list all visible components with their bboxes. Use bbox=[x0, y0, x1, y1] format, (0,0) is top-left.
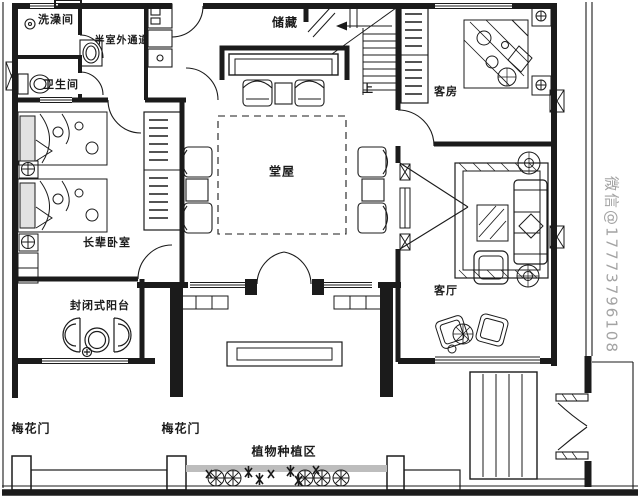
watermark-text: 微信@17773796108 bbox=[602, 176, 623, 354]
floor-plan-drawing bbox=[0, 0, 640, 500]
gate-label-middle: 梅花门 bbox=[161, 420, 200, 437]
balcony-furniture bbox=[63, 318, 131, 357]
room-label-living-room: 客厅 bbox=[434, 282, 458, 298]
room-label-hall: 堂屋 bbox=[269, 163, 295, 180]
entrance-step bbox=[227, 342, 342, 366]
elders-bedroom-furniture bbox=[18, 112, 181, 283]
media-wall bbox=[400, 164, 410, 250]
room-label-balcony: 封闭式阳台 bbox=[70, 297, 130, 313]
room-label-elders-bedroom: 长辈卧室 bbox=[83, 234, 131, 250]
stairs-up-label: 上 bbox=[362, 80, 374, 96]
room-label-guest-room: 客房 bbox=[434, 83, 458, 99]
room-label-shower: 洗澡间 bbox=[38, 11, 74, 27]
room-label-planting-area: 植物种植区 bbox=[251, 443, 316, 460]
room-label-passage: 半室外通道 bbox=[95, 32, 150, 47]
living-room-furniture bbox=[434, 152, 548, 353]
hall-furniture bbox=[183, 54, 388, 234]
outer-boundary-wall bbox=[2, 486, 638, 493]
gate-label-left: 梅花门 bbox=[11, 420, 50, 437]
pillars-and-jambs bbox=[170, 279, 393, 397]
porch-double-door bbox=[556, 394, 588, 459]
room-label-toilet: 卫生间 bbox=[43, 76, 79, 92]
floor-plan: 洗澡间 半室外通道 卫生间 储藏 客房 堂屋 长辈卧室 封闭式阳台 客厅 植物种… bbox=[0, 0, 640, 500]
guest-room-furniture bbox=[401, 7, 551, 103]
planting-bed bbox=[186, 465, 387, 486]
room-label-storage: 储藏 bbox=[272, 14, 298, 31]
passage-counters bbox=[148, 4, 172, 67]
side-porch-steps bbox=[470, 372, 588, 479]
